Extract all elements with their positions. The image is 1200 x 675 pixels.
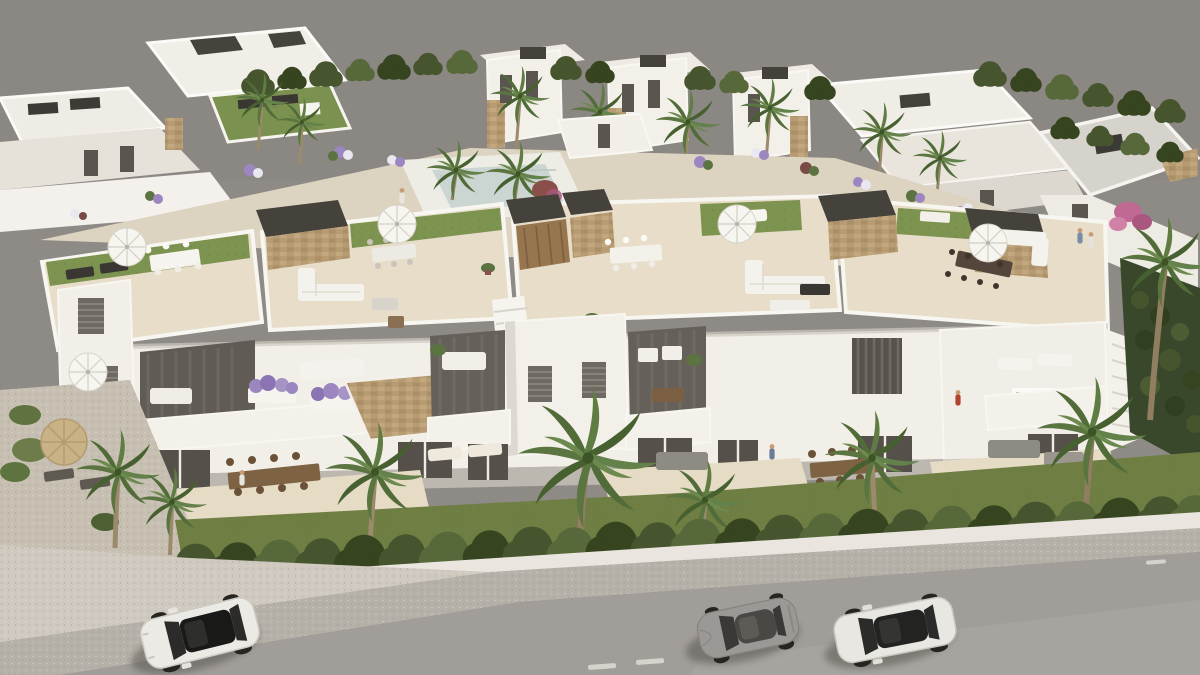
parasol [718, 205, 756, 243]
property-render [0, 0, 1200, 675]
render-canvas [0, 0, 1200, 675]
central-tower [505, 314, 628, 456]
curtain-glass [852, 338, 902, 394]
grey-sofa [656, 452, 708, 470]
parasol [378, 205, 416, 243]
louver-window [528, 366, 552, 402]
stair-bulkhead-1 [256, 200, 350, 270]
parasol [69, 353, 107, 391]
person [769, 444, 774, 459]
person [1077, 228, 1082, 243]
person [955, 390, 960, 405]
person [239, 470, 244, 485]
parasol [969, 224, 1007, 262]
grey-chaise [988, 440, 1040, 458]
stair-bulkhead-3 [818, 190, 898, 260]
person [1088, 232, 1093, 247]
parasol [108, 228, 146, 266]
louver-window [78, 298, 104, 334]
straw-parasol [41, 419, 87, 465]
person [399, 188, 404, 203]
